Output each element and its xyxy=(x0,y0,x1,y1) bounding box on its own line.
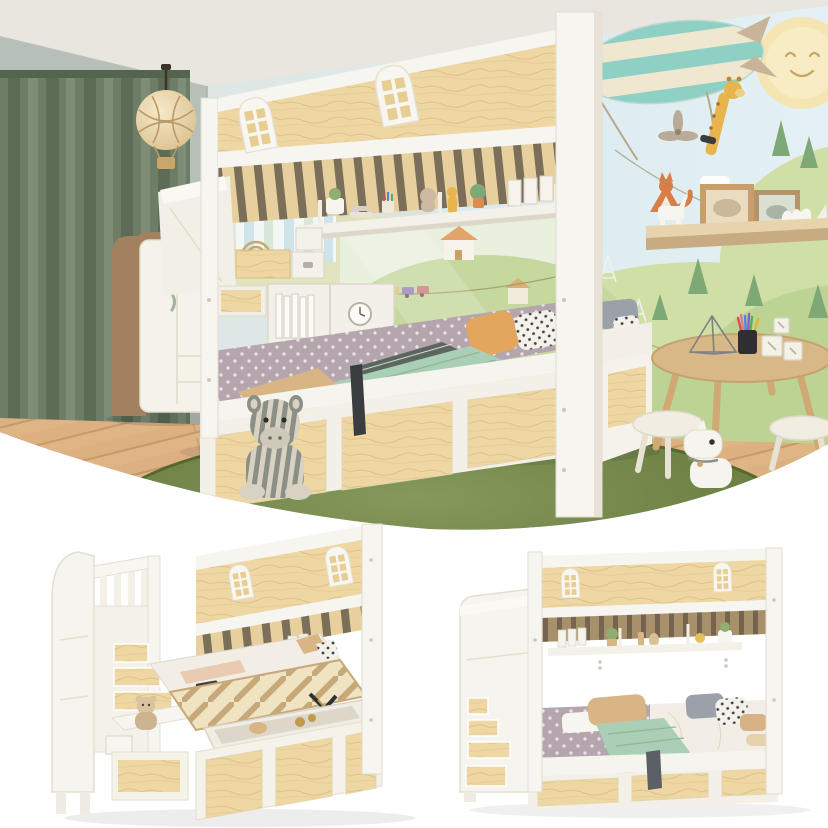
lamp-basket xyxy=(157,157,175,169)
collage-canvas xyxy=(0,0,828,828)
rr-right-post xyxy=(766,548,782,794)
rl-right-post xyxy=(362,524,382,774)
rl-suitcase xyxy=(106,736,132,754)
arched-window xyxy=(713,562,732,592)
rr-shelf-board xyxy=(548,642,742,656)
lifestyle-photo xyxy=(0,0,828,612)
product-collage xyxy=(0,0,828,828)
left-post xyxy=(201,98,218,438)
books xyxy=(276,294,314,338)
arched-window xyxy=(561,568,580,598)
rr-left-post xyxy=(528,552,542,792)
right-post-shade xyxy=(594,12,602,517)
rr-pull-strap xyxy=(646,750,662,790)
stair-step-storage xyxy=(216,286,266,316)
render-left xyxy=(52,524,415,827)
rr-bed xyxy=(528,548,782,810)
rr-binders xyxy=(558,628,586,647)
render-right xyxy=(460,548,810,818)
